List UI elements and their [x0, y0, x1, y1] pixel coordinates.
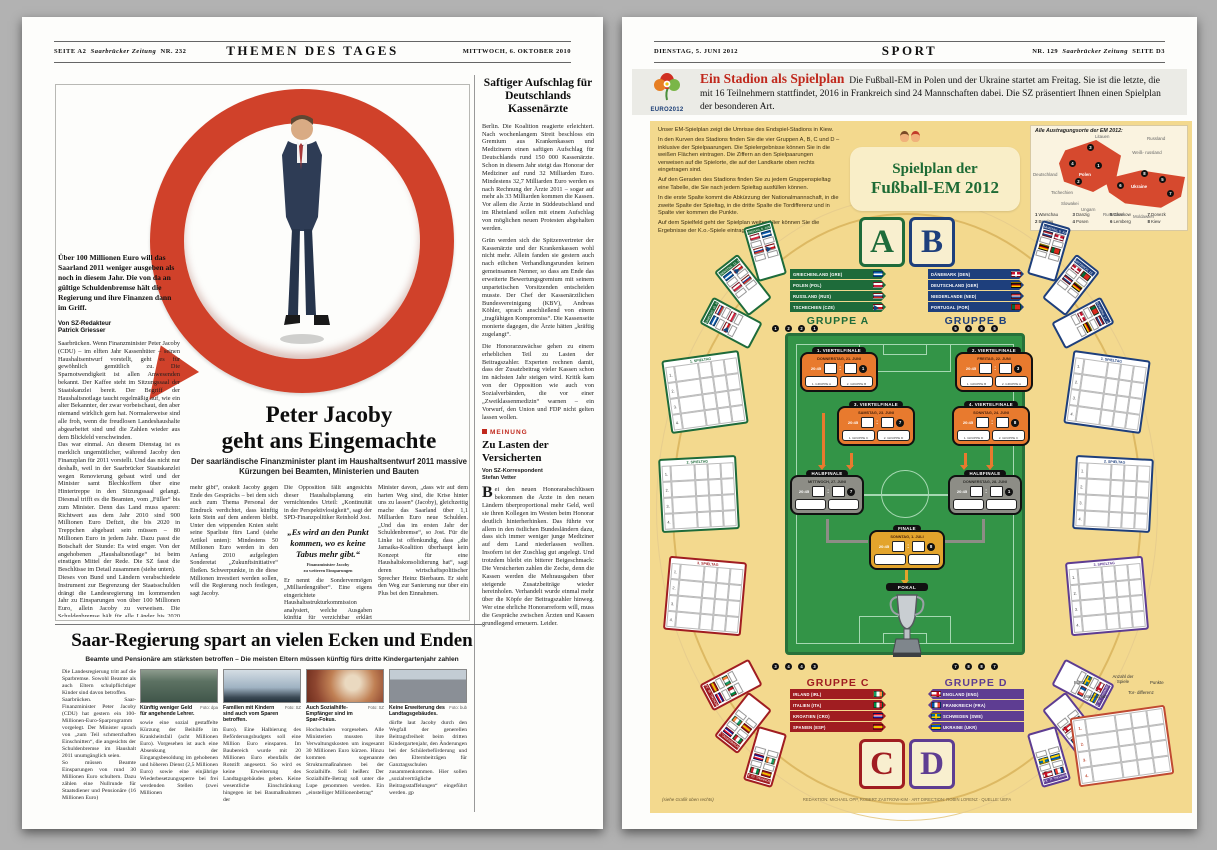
legend-tordifferenz: Tor- differenz	[1128, 691, 1154, 696]
matchday-table: 1. SPIELTAG 1.2.3.4.	[1063, 350, 1151, 434]
euro2012-logo-icon: EURO2012	[644, 72, 690, 113]
fans-icon	[900, 131, 920, 142]
team-slot[interactable]	[795, 499, 826, 510]
flag-denmark-icon	[1011, 271, 1021, 277]
bottom-column-3: Hochschulen vorgesehen. Alle Ministerien…	[306, 727, 384, 831]
team-row: DEUTSCHLAND (GER)	[928, 280, 1024, 290]
photo-caption: Auch Sozialhilfe-Empfänger sind im Spar-…	[306, 705, 364, 724]
venues-map: Alle Austragungsorte der EM 2012: Litaue…	[1030, 125, 1188, 231]
group-a-letter: A	[859, 217, 905, 267]
flag-italy-icon	[873, 702, 883, 708]
team-row: RUSSLAND (RUS)	[790, 291, 886, 301]
sidebar-paragraph: Grün werden sich die Spitzenvertreter de…	[482, 237, 594, 339]
score-slot[interactable]	[976, 417, 989, 428]
politician-photo	[268, 111, 336, 347]
score-slot[interactable]	[999, 363, 1012, 374]
legend-spiele: Anzahl der Spiele	[1108, 675, 1138, 685]
flag-england-icon	[931, 691, 941, 697]
quarterfinal-1: 1. VIERTELFINALE DONNERSTAG, 21. JUNI 20…	[800, 347, 878, 392]
map-venue-dot: 7	[1167, 190, 1174, 197]
quarterfinal-2: 2. VIERTELFINALE FREITAG, 22. JUNI 20:45…	[955, 347, 1033, 392]
sidebar-paragraph: Die Honorarzuwächse gehen zu einem erheb…	[482, 343, 594, 422]
matchday-table: 1. SPIELTAG 1.2.3.4.	[661, 350, 749, 434]
map-country-label: Litauen	[1095, 134, 1109, 139]
legend-sample-table: 1. 2. 3. 4.	[1070, 705, 1175, 788]
article-intro: Über 100 Millionen Euro will das Saarlan…	[58, 253, 180, 313]
header-rule-bottom	[54, 62, 571, 63]
trophy-label: POKAL	[886, 583, 928, 591]
team-row: NIEDERLANDE (NED)	[928, 291, 1024, 301]
map-venue-dot: 4	[1069, 160, 1076, 167]
figure-column: Künftig weniger Geld für angehende Lehre…	[140, 669, 218, 824]
team-slot[interactable]	[986, 499, 1017, 510]
bottom-headline: Saar-Regierung spart an vielen Ecken und…	[62, 630, 482, 652]
group-b-teams: DÄNEMARK (DEN) DEUTSCHLAND (GER) NIEDERL…	[928, 269, 1024, 312]
bottom-column-1: sowie eine sozial gestaffelte Kürzung de…	[140, 720, 218, 824]
opinion-headline: Zu Lasten der Versicherten	[482, 439, 594, 464]
photo-credit: Foto: dpa	[200, 705, 218, 710]
figure-column: Auch Sozialhilfe-Empfänger sind im Spar-…	[306, 669, 384, 831]
map-venue-dot: 6	[1117, 182, 1124, 189]
map-country-label: Slowakei	[1061, 201, 1079, 206]
byline-name: Patrick Griesser	[58, 327, 105, 334]
venue-number: 1	[1005, 488, 1013, 496]
semifinal-2: HALBFINALE DONNERSTAG, 28. JUNI 20:451	[948, 470, 1022, 515]
photo-food-plate	[306, 669, 384, 703]
photo-credit: Foto: bub	[449, 705, 467, 710]
map-venue-dot: 3	[1087, 144, 1094, 151]
team-row: IRLAND (IRL)	[790, 689, 886, 699]
sidebar-paragraph: Berlin. Die Koalition reagierte erleicht…	[482, 123, 594, 233]
team-slot[interactable]	[953, 499, 984, 510]
flag-germany-icon	[1011, 282, 1021, 288]
flag-greece-icon	[873, 271, 883, 277]
group-a-teams: GRIECHENLAND (GRE) POLEN (POL) RUSSLAND …	[790, 269, 886, 312]
photo-caption: Künftig weniger Geld für angehende Lehre…	[140, 705, 198, 717]
team-slot[interactable]	[828, 499, 859, 510]
figure-column: Keine Erweiterung des Landtagsgebäudes.F…	[389, 669, 467, 824]
bottom-column-2: Euro). Eine Halbierung des Beförderungsb…	[223, 727, 301, 831]
final-match: FINALE SONNTAG, 1. JULI 20:458	[869, 525, 945, 570]
venue-number: 1	[859, 365, 867, 373]
score-slot[interactable]	[892, 541, 905, 552]
bottom-column-4: dürfte laut Jacoby durch den Wegfall der…	[389, 720, 467, 824]
figure-column: Familien mit Kindern sind auch vom Spare…	[223, 669, 301, 831]
article-column-3: Minister davon, „dass wir auf dem harten…	[378, 485, 468, 619]
photo-classroom	[140, 669, 218, 703]
group-c-venue-dots: 3443	[772, 663, 818, 670]
team-row: ITALIEN (ITA)	[790, 700, 886, 710]
bottom-subhead: Beamte und Pensionäre am stärksten betro…	[62, 656, 482, 663]
main-subhead: Der saarländische Finanzminister plant i…	[190, 457, 468, 477]
header-rule-top	[54, 41, 571, 42]
header-rule-bottom	[654, 62, 1165, 63]
photo-credit: Foto: SZ	[368, 705, 384, 710]
team-row: GRIECHENLAND (GRE)	[790, 269, 886, 279]
team-slot[interactable]: 1. GRUPPE A	[805, 376, 838, 387]
opinion-tag: MEINUNG	[482, 429, 594, 436]
flag-ukraine-icon	[931, 724, 941, 730]
team-slot[interactable]: 2. GRUPPE A	[995, 376, 1028, 387]
footnote: (siehe Grafik oben rechts)	[662, 797, 714, 802]
score-slot[interactable]	[996, 417, 1009, 428]
team-slot[interactable]: 1. GRUPPE D	[957, 430, 990, 441]
map-venue-legend: 1Warschau 3Danzig 5Charkow 7Donezk 2Bres…	[1035, 212, 1185, 225]
team-slot[interactable]: 2. GRUPPE C	[992, 430, 1025, 441]
page-number: SEITE D3	[1132, 48, 1165, 55]
group-c-label: GRUPPE C	[790, 677, 886, 689]
map-venue-dot: 8	[1141, 170, 1148, 177]
matchday-table: 3. SPIELTAG 1.2.3.4.	[1065, 556, 1149, 637]
sidebar-article: Saftiger Aufschlag für Deutschlands Kass…	[482, 77, 594, 815]
bracket-arrow	[826, 540, 868, 543]
photo-children-jumping	[223, 669, 301, 703]
team-row: PORTUGAL (POR)	[928, 302, 1024, 312]
photo-parliament-building	[389, 669, 467, 703]
map-country-label: Tschechien	[1051, 190, 1073, 195]
paper-name: Saarbrücker Zeitung	[1062, 48, 1128, 55]
legend-platz: Platz	[1074, 681, 1084, 686]
team-row: UKRAINE (UKR)	[928, 722, 1024, 732]
center-circle	[881, 470, 929, 518]
group-d-letter: D	[909, 739, 955, 789]
map-venue-dot: 2	[1075, 178, 1082, 185]
score-slot[interactable]	[844, 363, 857, 374]
score-slot[interactable]	[812, 486, 825, 497]
trophy-icon	[884, 593, 930, 659]
flag-spain-icon	[873, 724, 883, 730]
team-row: DÄNEMARK (DEN)	[928, 269, 1024, 279]
group-d-teams: ENGLAND (ENG) FRANKREICH (FRA) SCHWEDEN …	[928, 689, 1024, 732]
score-slot[interactable]	[832, 486, 845, 497]
flag-russia-icon	[873, 293, 883, 299]
team-row: FRANKREICH (FRA)	[928, 700, 1024, 710]
group-b-letter: B	[909, 217, 955, 267]
sidebar-divider	[474, 75, 475, 812]
score-slot[interactable]	[970, 486, 983, 497]
matchday-table: 2. SPIELTAG 1.2.3.4.	[658, 455, 740, 533]
photo-credit: Foto: SZ	[285, 705, 301, 710]
team-row: SPANIEN (ESP)	[790, 722, 886, 732]
bracket-arrow	[944, 540, 985, 543]
left-page-header: SEITE A2 Saarbrücker Zeitung NR. 232 THE…	[54, 45, 571, 60]
legend-punkte: Punkte	[1150, 681, 1164, 686]
bottom-lead-column: Die Landesregierung tritt auf die Sparbr…	[62, 669, 136, 815]
score-slot[interactable]	[861, 417, 874, 428]
score-slot[interactable]	[979, 363, 992, 374]
venue-number: 7	[847, 488, 855, 496]
venue-number: 3	[1014, 365, 1022, 373]
team-slot[interactable]: 1. GRUPPE C	[842, 430, 875, 441]
photo-caption: Familien mit Kindern sind auch vom Spare…	[223, 705, 281, 724]
venue-number: 8	[1011, 419, 1019, 427]
map-country-label: Deutschland	[1033, 172, 1057, 177]
group-d-venue-dots: 7887	[952, 663, 998, 670]
issue-number: NR. 129	[1032, 48, 1058, 55]
article-column-2: Die Opposition fällt angesichts dieser H…	[284, 485, 372, 619]
team-slot[interactable]: 1. GRUPPE B	[960, 376, 993, 387]
map-label: Alle Austragungsorte der EM 2012:	[1035, 128, 1123, 134]
pull-quote-attribution: Finanzminister Jacobyzu weiteren Einspar…	[284, 562, 372, 573]
team-row: TSCHECHIEN (CZE)	[790, 302, 886, 312]
map-venue-dot: 1	[1095, 162, 1102, 169]
matchday-table: 3. SPIELTAG 1.2.3.4.	[663, 556, 747, 637]
article-column-1: mehr gibt“, orakelt Jacoby gegen Ende de…	[190, 485, 278, 619]
left-page: SEITE A2 Saarbrücker Zeitung NR. 232 THE…	[22, 17, 603, 829]
header-rule-top	[654, 41, 1165, 42]
right-page-header: DIENSTAG, 5. JUNI 2012 SPORT NR. 129 Saa…	[654, 45, 1165, 60]
map-country-label: Ukraine	[1131, 184, 1147, 189]
flag-poland-icon	[873, 282, 883, 288]
article-left-column: Saarbrücken. Wenn Finanzminister Peter J…	[58, 340, 180, 617]
infographic-title: Spielplan der Fußball-EM 2012	[850, 147, 1020, 211]
semifinal-1: HALBFINALE MITTWOCH, 27. JUNI 20:457	[790, 470, 864, 515]
venue-number: 8	[927, 543, 935, 551]
bracket-arrow	[822, 413, 825, 465]
matchday-table: 2. SPIELTAG 1.2.3.4.	[1072, 455, 1154, 533]
opinion-body: Bei den neuen Honorarabschlüssen bekomme…	[482, 486, 594, 627]
opinion-byline: Von SZ-KorrespondentStefan Vetter	[482, 468, 594, 483]
legend-mannschaft: Mannschaft	[1084, 695, 1107, 700]
infographic-instructions: Unser EM-Spielplan zeigt die Umrisse des…	[658, 127, 840, 238]
banner-title: Ein Stadion als Spielplan	[700, 71, 844, 86]
map-country-label: Weiß- russland	[1127, 150, 1167, 155]
flag-france-icon	[931, 702, 941, 708]
team-slot[interactable]	[908, 554, 940, 565]
venue-number: 7	[896, 419, 904, 427]
team-slot[interactable]	[874, 554, 906, 565]
team-row: KROATIEN (CRO)	[790, 711, 886, 721]
pull-quote: „Es wird an den Punkt kommen, wo es kein…	[284, 527, 372, 561]
page-date: MITTWOCH, 6. OKTOBER 2010	[463, 48, 571, 55]
bottom-article-rule	[55, 624, 482, 625]
intro-column: Über 100 Millionen Euro will das Saarlan…	[58, 253, 180, 617]
sidebar-headline: Saftiger Aufschlag für Deutschlands Kass…	[482, 77, 594, 117]
team-row: POLEN (POL)	[790, 280, 886, 290]
group-c-teams: IRLAND (IRL) ITALIEN (ITA) KROATIEN (CRO…	[790, 689, 886, 732]
team-row: ENGLAND (ENG)	[928, 689, 1024, 699]
score-slot[interactable]	[912, 541, 925, 552]
group-a-venue-dots: 1221	[772, 325, 818, 332]
team-row: SCHWEDEN (SWE)	[928, 711, 1024, 721]
map-venue-dot: 5	[1159, 176, 1166, 183]
credits: REDAKTION: MICHAEL OPP, ROBERT ZASTROW-K…	[792, 797, 1022, 802]
group-d-label: GRUPPE D	[928, 677, 1024, 689]
flag-sweden-icon	[931, 713, 941, 719]
euro2012-logo-text: EURO2012	[644, 107, 690, 113]
feature-banner: EURO2012 Ein Stadion als Spielplan Die F…	[632, 69, 1187, 115]
right-page: DIENSTAG, 5. JUNI 2012 SPORT NR. 129 Saa…	[622, 17, 1197, 829]
goal-area-top	[883, 344, 927, 355]
flag-ireland-icon	[873, 691, 883, 697]
score-slot[interactable]	[881, 417, 894, 428]
group-c-letter: C	[859, 739, 905, 789]
score-slot[interactable]	[824, 363, 837, 374]
quarterfinal-4: 4. VIERTELFINALE SONNTAG, 24. JUNI 20:45…	[952, 401, 1030, 446]
score-slot[interactable]	[990, 486, 1003, 497]
group-b-venue-dots: 5665	[952, 325, 998, 332]
flag-netherlands-icon	[1011, 293, 1021, 299]
team-slot[interactable]: 2. GRUPPE D	[877, 430, 910, 441]
main-headline: Peter Jacoby geht ans Eingemachte	[190, 402, 468, 454]
byline-role: Von SZ-Redakteur	[58, 320, 111, 327]
flag-portugal-icon	[1011, 304, 1021, 310]
team-slot[interactable]: 2. GRUPPE B	[840, 376, 873, 387]
quarterfinal-3: 3. VIERTELFINALE SAMSTAG, 23. JUNI 20:45…	[837, 401, 915, 446]
map-country-label: Polen	[1079, 172, 1091, 177]
map-country-label: Russland	[1147, 136, 1165, 141]
photo-caption: Keine Erweiterung des Landtagsgebäudes.	[389, 705, 447, 717]
flag-croatia-icon	[873, 713, 883, 719]
flag-czech-icon	[873, 304, 883, 310]
